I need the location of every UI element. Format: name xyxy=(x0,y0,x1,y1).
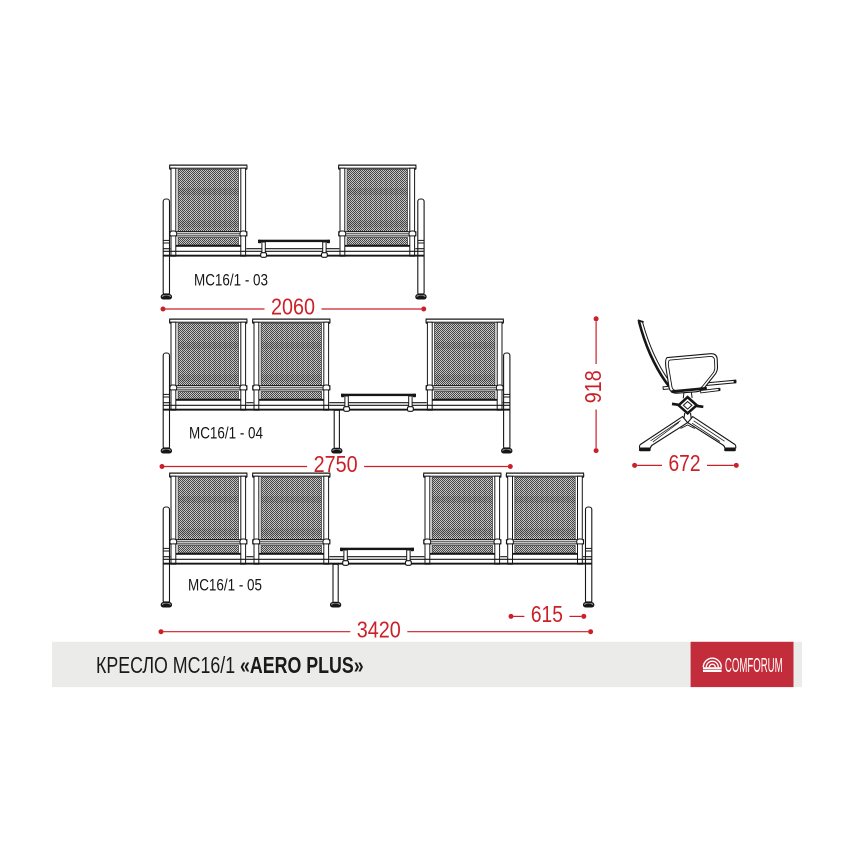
svg-text:МС16/1 - 05: МС16/1 - 05 xyxy=(188,576,262,595)
svg-text:«AERO PLUS»: «AERO PLUS» xyxy=(240,652,364,678)
svg-text:918: 918 xyxy=(580,370,606,403)
svg-text:672: 672 xyxy=(669,450,701,476)
svg-text:615: 615 xyxy=(531,601,563,627)
svg-text:COMFORUM: COMFORUM xyxy=(725,655,783,677)
svg-text:МС16/1 - 04: МС16/1 - 04 xyxy=(189,424,263,443)
svg-text:МС16/1 - 03: МС16/1 - 03 xyxy=(194,271,268,290)
svg-text:3420: 3420 xyxy=(357,616,401,642)
svg-text:2060: 2060 xyxy=(271,294,315,320)
svg-text:КРЕСЛО МС16/1: КРЕСЛО МС16/1 xyxy=(96,652,235,678)
